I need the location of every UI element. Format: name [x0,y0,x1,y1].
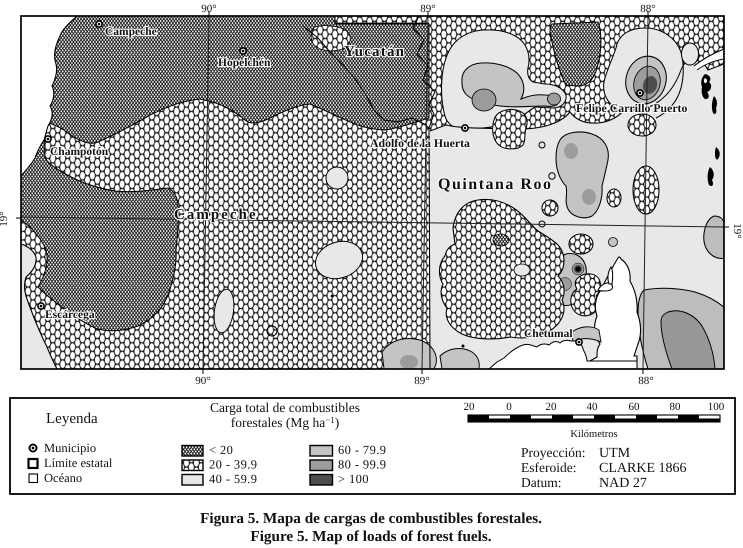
svg-text:Yucatán: Yucatán [344,44,405,60]
svg-text:Figura 5. Mapa de cargas de co: Figura 5. Mapa de cargas de combustibles… [200,510,542,527]
svg-text:60 - 79.9: 60 - 79.9 [338,443,386,457]
svg-text:> 100: > 100 [338,472,369,486]
svg-text:Datum:: Datum: [521,475,562,490]
svg-text:< 20: < 20 [209,443,233,457]
svg-text:Límite estatal: Límite estatal [44,456,113,470]
svg-text:89°: 89° [414,375,429,387]
svg-text:20 - 39.9: 20 - 39.9 [209,458,257,472]
svg-text:Kilómetros: Kilómetros [570,429,617,440]
svg-text:80 - 99.9: 80 - 99.9 [338,458,386,472]
svg-text:100: 100 [708,401,725,413]
svg-text:Champotón: Champotón [50,146,109,158]
svg-text:Océano: Océano [44,471,82,485]
svg-text:90°: 90° [195,375,210,387]
svg-text:19°: 19° [0,211,10,226]
svg-text:Esferoide:: Esferoide: [521,460,576,475]
svg-text:CLARKE 1866: CLARKE 1866 [599,461,687,476]
svg-text:Quintana Roo: Quintana Roo [438,176,552,193]
svg-text:Felipe Carrillo Puerto: Felipe Carrillo Puerto [576,101,687,115]
svg-text:Leyenda: Leyenda [46,411,98,427]
svg-text:NAD 27: NAD 27 [599,476,647,491]
svg-text:Chetumal: Chetumal [524,328,573,340]
svg-text:88°: 88° [638,375,653,387]
svg-text:90°: 90° [201,3,216,15]
svg-text:0: 0 [506,401,512,413]
svg-text:Adolfo de la Huerta: Adolfo de la Huerta [370,136,470,150]
svg-text:88°: 88° [640,3,655,15]
svg-text:Escárcega: Escárcega [45,309,95,321]
svg-text:89°: 89° [420,3,435,15]
svg-text:40: 40 [587,401,599,413]
svg-text:Municipio: Municipio [44,441,96,455]
svg-text:Campeche: Campeche [174,207,258,223]
svg-text:19°: 19° [731,223,743,238]
svg-text:40 - 59.9: 40 - 59.9 [209,472,257,486]
svg-text:60: 60 [629,401,641,413]
svg-text:Hopelchén: Hopelchén [218,57,271,69]
svg-text:Campeche: Campeche [105,26,157,38]
svg-text:Figure 5. Map of loads of fore: Figure 5. Map of loads of forest fuels. [250,528,491,545]
svg-text:UTM: UTM [599,446,631,461]
svg-text:20: 20 [464,401,476,413]
svg-text:forestales (Mg ha−1): forestales (Mg ha−1) [231,415,340,430]
svg-text:Proyección:: Proyección: [521,445,585,460]
svg-text:80: 80 [670,401,682,413]
svg-text:20: 20 [546,401,558,413]
svg-text:Carga total de combustibles: Carga total de combustibles [210,400,360,415]
